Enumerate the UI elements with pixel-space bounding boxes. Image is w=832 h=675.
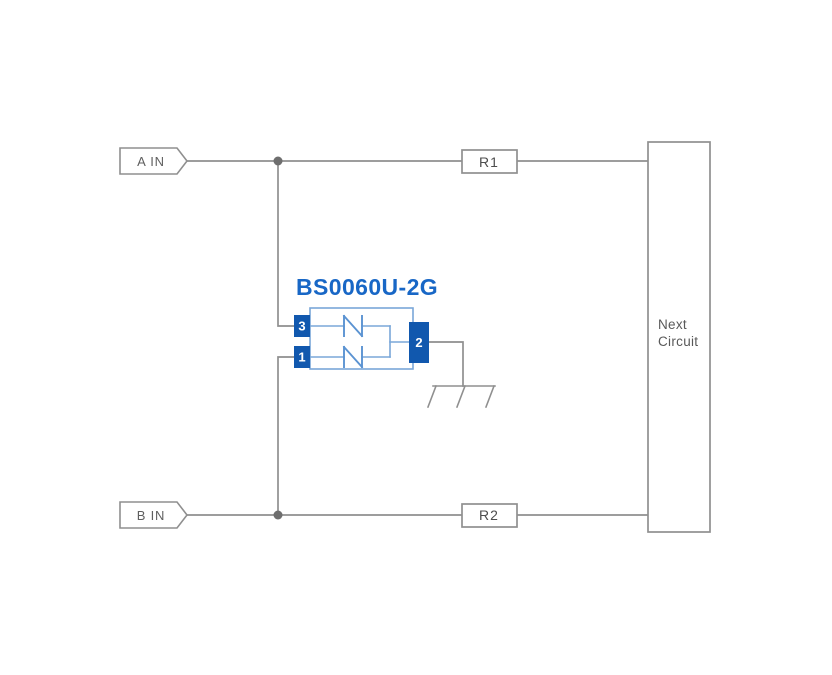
resistor-r1: R1 (462, 150, 517, 173)
next-circuit-block: Next Circuit (648, 142, 710, 532)
schematic-canvas: A IN B IN R1 R2 Next Circuit BS0060U-2G (0, 0, 832, 675)
pin-2-number: 2 (415, 335, 422, 350)
pin-3: 3 (294, 315, 310, 337)
wire-b-to-pin1 (278, 357, 294, 515)
esd-protection-component: BS0060U-2G 3 1 (294, 274, 438, 369)
input-connector-b: B IN (120, 502, 187, 528)
circuit-diagram: A IN B IN R1 R2 Next Circuit BS0060U-2G (0, 0, 832, 675)
pin-1-number: 1 (298, 350, 305, 365)
next-circuit-label-line1: Next (658, 317, 687, 332)
wire-pin2-to-ground (429, 342, 463, 386)
input-a-label: A IN (137, 154, 165, 169)
resistor-r2-label: R2 (479, 507, 499, 523)
part-number-label: BS0060U-2G (296, 274, 438, 300)
junction-dot-bottom (274, 511, 283, 520)
input-b-label: B IN (137, 508, 165, 523)
resistor-r2: R2 (462, 504, 517, 527)
ground-hatches (428, 386, 494, 407)
input-connector-a: A IN (120, 148, 187, 174)
pin-1: 1 (294, 346, 310, 368)
pin-2: 2 (409, 322, 429, 363)
next-circuit-label-line2: Circuit (658, 334, 698, 349)
resistor-r1-label: R1 (479, 154, 499, 170)
wire-a-to-pin3 (278, 161, 294, 326)
junction-dot-top (274, 157, 283, 166)
pin-3-number: 3 (298, 319, 305, 334)
chassis-ground-icon (428, 386, 495, 407)
